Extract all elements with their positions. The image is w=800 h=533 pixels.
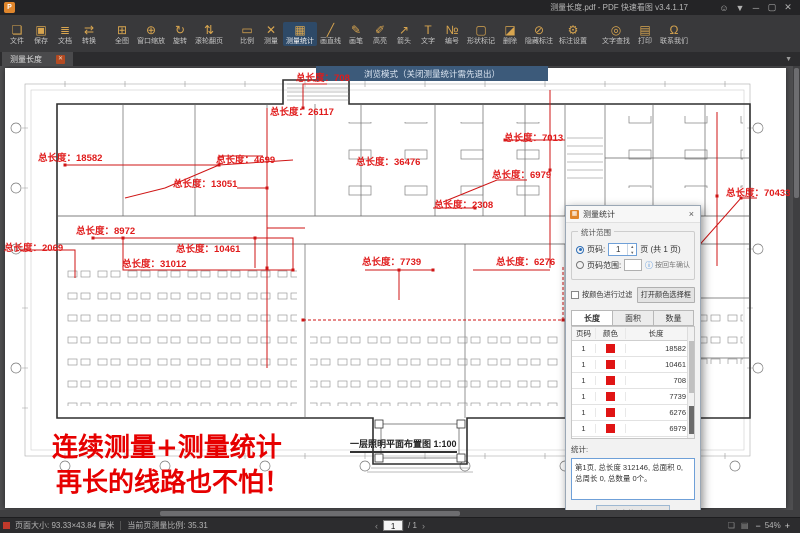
open-color-picker-button[interactable]: 打开颜色选择框: [637, 287, 695, 303]
arrow-label: 箭头: [397, 37, 411, 46]
fit-page-label: 全图: [115, 37, 129, 46]
red-marker-icon: [3, 522, 10, 529]
document-tab-label: 测量长度: [10, 54, 42, 65]
tab-area[interactable]: 面积: [612, 310, 653, 326]
color-filter-checkbox[interactable]: [571, 291, 579, 299]
cell-page: 1: [572, 360, 596, 369]
search-icon: ◎: [611, 23, 621, 37]
measure-label: 总长度：8972: [76, 227, 135, 237]
rotate-button[interactable]: ↻旋转: [168, 22, 192, 46]
fit-page-button[interactable]: ⊞全图: [110, 22, 134, 46]
measure-label: 总长度：7739: [362, 258, 421, 268]
text-search-button[interactable]: ◎文字查找: [599, 22, 633, 46]
zoom-out-button[interactable]: −: [755, 521, 760, 531]
cell-color: [596, 360, 626, 369]
panel-title-bar[interactable]: ▦ 测量统计 ×: [566, 206, 700, 223]
draw-line-button[interactable]: ╱画直线: [317, 22, 344, 46]
print-label: 打印: [638, 37, 652, 46]
cell-length: 18582: [626, 344, 694, 353]
rotate-label: 旋转: [173, 37, 187, 46]
minimize-button[interactable]: ─: [748, 3, 764, 13]
shape-mark-label: 形状标记: [467, 37, 495, 46]
convert-icon: ⇄: [84, 23, 94, 37]
header-length: 长度: [626, 328, 694, 339]
app-logo-icon: P: [4, 2, 15, 13]
text-search-label: 文字查找: [602, 37, 630, 46]
table-row[interactable]: 1 6276: [572, 405, 694, 421]
number-label: 编号: [445, 37, 459, 46]
cell-length: 10461: [626, 360, 694, 369]
measure-stats-label: 测量统计: [286, 37, 314, 46]
hide-annotation-label: 隐藏标注: [525, 37, 553, 46]
document-button[interactable]: ≣文档: [53, 22, 77, 46]
stats-range-group: 统计范围 页码: 1 ▲▼ 页 (共 1 页) 页码范围:: [571, 231, 695, 280]
status-divider: [120, 521, 121, 530]
measure-label: 总长度：6979: [492, 171, 551, 181]
erase-button[interactable]: ◪删除: [498, 22, 522, 46]
status-bar: 页面大小: 93.33×43.84 厘米 当前页测量比例: 35.31 ‹ 1 …: [0, 517, 800, 533]
file-label: 文件: [10, 37, 24, 46]
toolbar-collapse-icon[interactable]: ▼: [785, 56, 792, 63]
eraser-icon: ◪: [504, 23, 515, 37]
scale-icon: ▭: [241, 23, 252, 37]
measure-label: 总长度：708: [296, 74, 350, 84]
convert-button[interactable]: ⇄转换: [77, 22, 101, 46]
measure-stats-icon: ▦: [294, 23, 305, 37]
text-button[interactable]: T文字: [416, 22, 440, 46]
scroll-page-icon: ⇅: [204, 23, 214, 37]
highlight-icon: ✐: [375, 23, 385, 37]
table-scrollbar[interactable]: [687, 327, 694, 438]
color-swatch: [606, 360, 615, 369]
contact-button[interactable]: Ω联系我们: [657, 22, 691, 46]
color-swatch: [606, 424, 615, 433]
measure-stats-panel: ▦ 测量统计 × 统计范围 页码: 1 ▲▼ 页 (共 1 页): [565, 205, 701, 511]
zoom-icon: ⊕: [146, 23, 156, 37]
erase-label: 删除: [503, 37, 517, 46]
fit-page-icon: ⊞: [117, 23, 127, 37]
measure-label: 总长度：7013: [504, 134, 563, 144]
text-icon: T: [424, 23, 431, 37]
slogan-line-1: 连续测量+测量统计: [52, 432, 282, 464]
panel-icon: ▦: [570, 210, 579, 219]
page-range-label: 页码范围:: [587, 260, 621, 271]
pen-icon: ✎: [351, 23, 361, 37]
save-icon: ▣: [35, 23, 46, 37]
document-tab-bar: 测量长度 ✕ ▼: [0, 52, 800, 66]
cell-page: 1: [572, 424, 596, 433]
line-icon: ╱: [327, 23, 334, 37]
cell-color: [596, 344, 626, 353]
page-number-value: 1: [609, 244, 627, 255]
page-size-label: 页面大小: 93.33×43.84 厘米: [15, 520, 114, 531]
highlight-button[interactable]: ✐高亮: [368, 22, 392, 46]
zoom-level: 54%: [765, 521, 781, 530]
table-header-row: 页码 颜色 长度: [572, 327, 694, 341]
stats-range-title: 统计范围: [578, 227, 614, 238]
cell-length: 6979: [626, 424, 694, 433]
panel-close-button[interactable]: ×: [687, 209, 696, 219]
enter-confirm-hint: 按回车确认: [655, 260, 690, 270]
hide-annotation-icon: ⊘: [534, 23, 544, 37]
info-icon: ⓘ: [645, 260, 653, 271]
measure-label: 总长度：36476: [356, 158, 420, 168]
measure-button[interactable]: ✕测量: [259, 22, 283, 46]
measure-label: 总长度：18582: [38, 154, 102, 164]
shape-mark-button[interactable]: ▢形状标记: [464, 22, 498, 46]
skin-menu-icon[interactable]: ▼: [732, 3, 748, 13]
page-radio-label: 页码:: [587, 244, 605, 255]
measure-label: 总长度：70433: [726, 189, 790, 199]
color-swatch: [606, 408, 615, 417]
page-number-box[interactable]: 1: [383, 520, 403, 531]
save-label: 保存: [34, 37, 48, 46]
table-row[interactable]: 1 708: [572, 373, 694, 389]
maximize-button[interactable]: ▢: [764, 2, 780, 13]
cell-length: 6276: [626, 408, 694, 417]
scale-label: 比例: [240, 37, 254, 46]
cell-page: 1: [572, 344, 596, 353]
text-label: 文字: [421, 37, 435, 46]
file-button[interactable]: ❏文件: [5, 22, 29, 46]
cell-color: [596, 376, 626, 385]
page-radio[interactable]: [576, 246, 584, 254]
measure-stats-button[interactable]: ▦测量统计: [283, 22, 317, 46]
user-icon[interactable]: ☺: [716, 3, 732, 13]
stats-table: 页码 颜色 长度 1 18582 1 10461: [571, 326, 695, 439]
measure-label: 总长度：4699: [216, 156, 275, 166]
continuous-layout-icon[interactable]: ▤: [741, 521, 749, 530]
single-page-layout-icon[interactable]: ❏: [728, 521, 735, 530]
contact-label: 联系我们: [660, 37, 688, 46]
cell-length: 708: [626, 376, 694, 385]
cell-page: 1: [572, 376, 596, 385]
drawing-caption: 一层照明平面布置图 1:100: [350, 437, 457, 453]
spinner-down-icon[interactable]: ▼: [628, 250, 636, 256]
measure-label: 总长度：26117: [270, 108, 334, 118]
document-tab[interactable]: 测量长度 ✕: [2, 52, 73, 66]
title-bar: P 测量长度.pdf - PDF 快速看图 v3.4.1.17 ☺ ▼ ─ ▢ …: [0, 0, 800, 15]
cell-length: 7739: [626, 392, 694, 401]
panel-title: 测量统计: [583, 209, 615, 220]
app-window: P 测量长度.pdf - PDF 快速看图 v3.4.1.17 ☺ ▼ ─ ▢ …: [0, 0, 800, 533]
shape-mark-icon: ▢: [475, 23, 486, 37]
table-row[interactable]: 1 7739: [572, 389, 694, 405]
pen-label: 画笔: [349, 37, 363, 46]
arrow-icon: ↗: [399, 23, 409, 37]
total-label: 统计:: [571, 444, 695, 455]
number-button[interactable]: №编号: [440, 22, 464, 46]
page-number-spinner[interactable]: 1 ▲▼: [608, 243, 637, 256]
arrow-button[interactable]: ↗箭头: [392, 22, 416, 46]
cell-color: [596, 408, 626, 417]
print-button[interactable]: ▤打印: [633, 22, 657, 46]
measure-icon: ✕: [266, 23, 276, 37]
rotate-icon: ↻: [175, 23, 185, 37]
next-page-button[interactable]: ›: [417, 521, 430, 531]
window-zoom-label: 窗口缩放: [137, 37, 165, 46]
zoom-in-button[interactable]: +: [785, 521, 790, 531]
prev-page-button[interactable]: ‹: [370, 521, 383, 531]
table-row[interactable]: 1 18582: [572, 341, 694, 357]
color-swatch: [606, 344, 615, 353]
document-icon: ≣: [60, 23, 70, 37]
measure-label: 总长度：13051: [173, 180, 237, 190]
number-icon: №: [446, 23, 459, 37]
tab-close-icon[interactable]: ✕: [56, 55, 65, 64]
highlight-label: 高亮: [373, 37, 387, 46]
color-swatch: [606, 392, 615, 401]
close-button[interactable]: ✕: [780, 2, 796, 13]
measure-label: 测量: [264, 37, 278, 46]
page-range-input[interactable]: [624, 259, 642, 271]
pen-button[interactable]: ✎画笔: [344, 22, 368, 46]
measure-label: 总长度：31012: [122, 260, 186, 270]
table-row[interactable]: 1 6979: [572, 421, 694, 437]
annotation-settings-button[interactable]: ⚙标注设置: [556, 22, 590, 46]
vertical-scrollbar[interactable]: [793, 66, 800, 517]
window-title: 测量长度.pdf - PDF 快速看图 v3.4.1.17: [550, 2, 688, 13]
document-label: 文档: [58, 37, 72, 46]
browse-mode-banner: 浏览模式（关闭测量统计需先退出）: [316, 66, 548, 81]
measure-label: 总长度：2308: [434, 201, 493, 211]
scroll-page-button[interactable]: ⇅滚轮翻页: [192, 22, 226, 46]
measure-label: 总长度：2069: [4, 244, 63, 254]
measure-scale-label: 当前页测量比例: 35.31: [127, 520, 207, 531]
table-row[interactable]: 1 10461: [572, 357, 694, 373]
window-zoom-button[interactable]: ⊕窗口缩放: [134, 22, 168, 46]
save-button[interactable]: ▣保存: [29, 22, 53, 46]
tab-count[interactable]: 数量: [653, 310, 694, 326]
page-count-label: 页 (共 1 页): [640, 244, 680, 255]
horizontal-scrollbar[interactable]: [0, 510, 793, 517]
printer-icon: ▤: [639, 23, 650, 37]
page-total-label: / 1: [408, 521, 417, 530]
draw-line-label: 画直线: [320, 37, 341, 46]
color-swatch: [606, 376, 615, 385]
scale-button[interactable]: ▭比例: [235, 22, 259, 46]
annotation-settings-label: 标注设置: [559, 37, 587, 46]
header-page: 页码: [572, 328, 596, 339]
cell-page: 1: [572, 408, 596, 417]
headset-icon: Ω: [670, 23, 679, 37]
hide-annotation-button[interactable]: ⊘隐藏标注: [522, 22, 556, 46]
tab-length[interactable]: 长度: [571, 310, 612, 326]
document-viewport: D: [0, 66, 800, 517]
scroll-page-label: 滚轮翻页: [195, 37, 223, 46]
page-range-radio[interactable]: [576, 261, 584, 269]
main-toolbar: ❏文件 ▣保存 ≣文档 ⇄转换 ⊞全图 ⊕窗口缩放 ↻旋转 ⇅滚轮翻页 ▭比例 …: [0, 15, 800, 52]
header-color: 颜色: [596, 328, 626, 339]
folder-icon: ❏: [12, 23, 23, 37]
gear-icon: ⚙: [568, 23, 579, 37]
measure-label: 总长度：10461: [176, 245, 240, 255]
summary-box: 第1页, 总长度 312146, 总面积 0, 总周长 0, 总数量 0个。: [571, 458, 695, 500]
cell-color: [596, 392, 626, 401]
slogan-line-2: 再长的线路也不怕！: [56, 467, 290, 499]
measure-label: 总长度：6276: [496, 258, 555, 268]
cell-color: [596, 424, 626, 433]
convert-label: 转换: [82, 37, 96, 46]
cell-page: 1: [572, 392, 596, 401]
color-filter-label: 按颜色进行过滤: [582, 290, 632, 300]
